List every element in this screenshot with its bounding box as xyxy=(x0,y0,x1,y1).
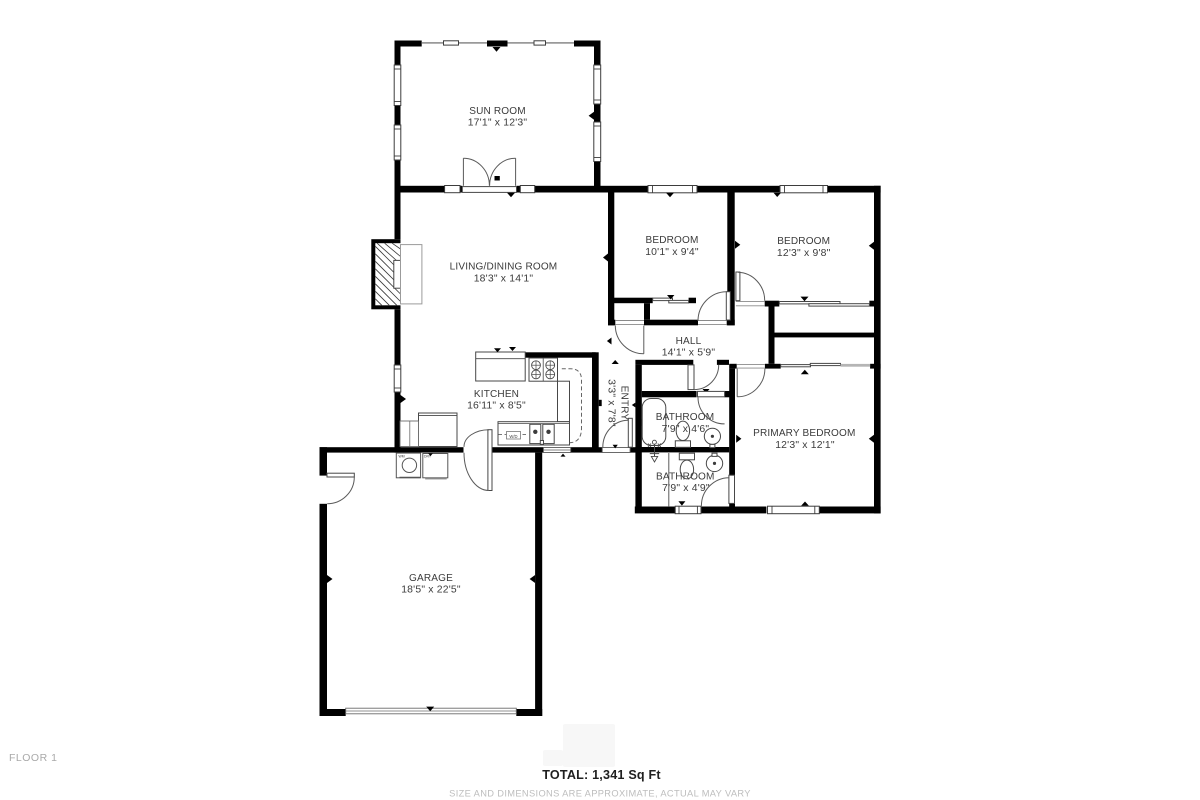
svg-text:LIVING/DINING ROOM: LIVING/DINING ROOM xyxy=(450,261,558,272)
svg-text:10'1" x 9'4": 10'1" x 9'4" xyxy=(645,247,699,258)
svg-text:SIZE AND DIMENSIONS ARE APPROX: SIZE AND DIMENSIONS ARE APPROXIMATE, ACT… xyxy=(449,789,751,799)
svg-text:SUN ROOM: SUN ROOM xyxy=(469,106,525,117)
svg-text:7'9" x 4'6": 7'9" x 4'6" xyxy=(662,424,710,435)
svg-text:18'3" x 14'1": 18'3" x 14'1" xyxy=(474,274,534,285)
svg-text:HALL: HALL xyxy=(676,336,702,347)
svg-text:WM: WM xyxy=(399,455,405,459)
svg-text:12'3" x 9'8": 12'3" x 9'8" xyxy=(777,248,831,259)
svg-text:KITCHEN: KITCHEN xyxy=(474,389,519,400)
svg-text:TOTAL: 1,341 Sq Ft: TOTAL: 1,341 Sq Ft xyxy=(542,768,661,782)
svg-text:BATHROOM: BATHROOM xyxy=(656,471,715,482)
svg-text:12'3" x 12'1": 12'3" x 12'1" xyxy=(775,440,835,451)
svg-text:17'1" x 12'3": 17'1" x 12'3" xyxy=(468,118,528,129)
svg-text:ENTRY: ENTRY xyxy=(618,386,629,421)
svg-text:14'1" x 5'9": 14'1" x 5'9" xyxy=(662,347,716,358)
svg-text:GARAGE: GARAGE xyxy=(409,573,453,584)
svg-text:3'3" x 7'8": 3'3" x 7'8" xyxy=(606,379,617,427)
svg-text:18'5" x 22'5": 18'5" x 22'5" xyxy=(401,585,461,596)
svg-text:BEDROOM: BEDROOM xyxy=(777,236,830,247)
svg-text:16'11" x 8'5": 16'11" x 8'5" xyxy=(467,401,526,412)
svg-text:W/D: W/D xyxy=(509,434,517,439)
svg-text:BATHROOM: BATHROOM xyxy=(656,412,715,423)
svg-text:BEDROOM: BEDROOM xyxy=(646,235,699,246)
svg-text:PRIMARY BEDROOM: PRIMARY BEDROOM xyxy=(753,428,855,439)
svg-text:7'9" x 4'9": 7'9" x 4'9" xyxy=(662,483,710,494)
svg-text:FLOOR 1: FLOOR 1 xyxy=(9,752,57,764)
